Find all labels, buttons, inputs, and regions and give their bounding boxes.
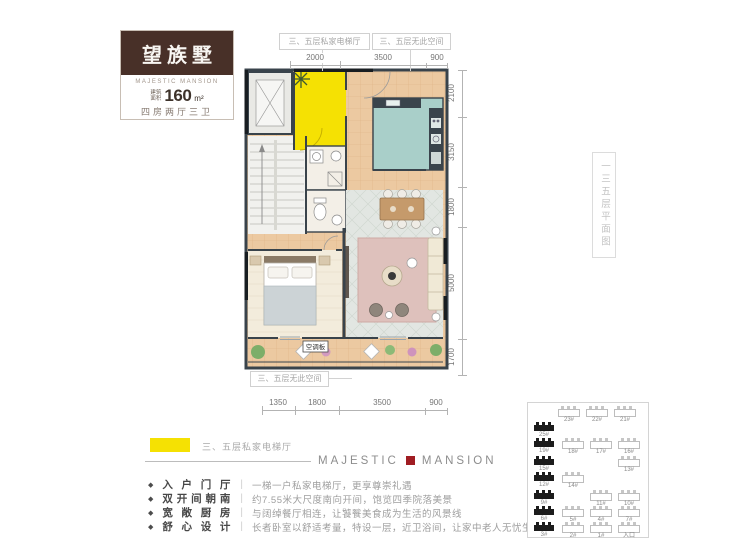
siteplan-building: 12# [534,475,554,481]
kitchen [373,98,443,170]
siteplan-building: 23# [558,409,580,417]
siteplan-building: 25# [534,425,554,431]
siteplan-building: 10# [618,493,640,501]
siteplan-building: 15# [534,459,554,465]
area-value: 160 [164,86,191,106]
dim-line-bottom [262,410,448,411]
siteplan-building: 7# [618,509,640,517]
dim-value: 3500 [367,398,397,408]
dim-tick [458,227,467,228]
dim-value: 3150 [447,135,457,169]
feature-title: 双开间朝南 [162,491,230,506]
bathroom-1 [306,146,346,190]
living-room [344,227,443,322]
svg-text:空调板: 空调板 [306,342,326,351]
feature-desc: 与阔绰餐厅相连，让饕餮美食成为生活的风景线 [252,506,462,520]
floor-tag: 一三五层平面图 [592,152,616,258]
elevator-shaft [248,72,292,134]
area-prefix: 建筑面积 [150,90,161,102]
siteplan-building: 16# [618,441,640,449]
siteplan-building: 22# [586,409,608,417]
callout-elevator-lobby: 三、五层私家电梯厅 [279,33,370,50]
bedroom [248,236,342,338]
dim-value: 900 [424,53,450,63]
siteplan-building: 入口 [618,525,640,533]
floor-plan: 空调板 [240,60,455,390]
dim-value: 3500 [368,53,398,63]
floorplan-page: 望族墅 MAJESTIC MANSION 建筑面积 160 m² 四房两厅三卫 [0,0,750,560]
feature-desc: 长者卧室以舒适考量，特设一层，近卫浴间，让家中老人无忧生活起居 [252,520,562,534]
leader-line [410,49,411,71]
dim-value: 2100 [447,76,457,110]
staircase [248,136,306,234]
separator: | [240,493,243,504]
feature-row: ◆ 入户门厅 | 一梯一户私家电梯厅，更享尊崇礼遇 [148,478,412,491]
siteplan-building-label: 1# [588,533,614,539]
dim-tick [458,375,467,376]
dim-tick [295,406,296,415]
diamond-icon: ◆ [148,495,153,503]
dim-tick [458,339,467,340]
private-elevator-lobby [292,70,346,150]
feature-title: 宽敞厨房 [162,505,230,520]
feature-desc: 约7.55米大尺度南向开间，饱览四季院落美景 [252,492,453,506]
brand-left: MAJESTIC [318,455,399,467]
siteplan-building: 6# [534,509,554,515]
diamond-icon: ◆ [148,509,153,517]
ac-platform-label: 空调板 [303,341,328,352]
leader-line [328,378,352,379]
siteplan-building: 2# [562,525,584,533]
legend-swatch [150,438,190,452]
siteplan-building-label: 14# [560,483,586,489]
siteplan-building-label: 17# [588,449,614,455]
diamond-icon: ◆ [148,523,153,531]
feature-row: ◆ 双开间朝南 | 约7.55米大尺度南向开间，饱览四季院落美景 [148,492,453,505]
siteplan-building-label: 2# [560,533,586,539]
dim-tick [290,61,291,69]
separator: | [240,507,243,518]
dim-value: 900 [423,398,449,408]
siteplan-building: 13# [618,459,640,467]
siteplan-building-label: 21# [612,417,638,423]
siteplan-building-label: 19# [531,448,557,454]
brand-logotype: MAJESTIC MANSION [318,454,497,467]
brand-square-icon [406,456,415,465]
project-name-en: MAJESTIC MANSION [121,79,233,85]
bathroom-2 [306,190,346,232]
dim-line-right [462,70,463,375]
siteplan-building-label: 12# [531,482,557,488]
feature-row: ◆ 舒心设计 | 长者卧室以舒适考量，特设一层，近卫浴间，让家中老人无忧生活起居 [148,520,562,533]
siteplan-building-label: 入口 [616,533,642,539]
dim-tick [340,61,341,69]
brand-right: MANSION [422,455,497,467]
siteplan-building: 18# [562,441,584,449]
feature-row: ◆ 宽敞厨房 | 与阔绰餐厅相连，让饕餮美食成为生活的风景线 [148,506,462,519]
siteplan-building-label: 3# [531,532,557,538]
feature-desc: 一梯一户私家电梯厅，更享尊崇礼遇 [252,478,412,492]
dim-line-top [290,65,448,66]
dim-tick [339,406,340,415]
siteplan-building: 4# [590,509,612,517]
siteplan-building: 19# [534,441,554,447]
separator: | [240,479,243,490]
siteplan-building-label: 23# [556,417,582,423]
dim-value: 1800 [302,398,332,408]
siteplan-building-label: 16# [616,449,642,455]
siteplan-building: 14# [562,475,584,483]
logo-banner: 望族墅 [121,31,233,75]
area-unit: m² [194,94,203,103]
siteplan-building-label: 18# [560,449,586,455]
dim-tick [458,70,467,71]
siteplan-building: 21# [614,409,636,417]
siteplan-building: 17# [590,441,612,449]
legend-label: 三、五层私家电梯厅 [202,440,292,453]
dim-tick [458,187,467,188]
site-key-plan: 23#22#21#25#19#15#12#9#6#3#18#14#5#2#17#… [527,402,649,538]
callout-void-bottom: 三、五层无此空间 [250,371,329,387]
siteplan-building: 1# [590,525,612,533]
separator: | [240,521,243,532]
feature-title: 入户门厅 [162,477,230,492]
siteplan-building-label: 22# [584,417,610,423]
siteplan-building-label: 13# [616,467,642,473]
divider-line [145,461,311,462]
dim-value: 1800 [447,190,457,224]
dim-value: 2000 [300,53,330,63]
dim-value: 1350 [263,398,293,408]
siteplan-building: 9# [534,493,554,499]
feature-title: 舒心设计 [162,519,230,534]
dim-tick [458,117,467,118]
diamond-icon: ◆ [148,481,153,489]
siteplan-building: 11# [590,493,612,501]
unit-layout: 四房两厅三卫 [121,105,233,118]
project-name-cn: 望族墅 [137,39,217,68]
dining-table [380,190,424,229]
siteplan-building: 5# [562,509,584,517]
dim-value: 1700 [447,340,457,374]
siteplan-building: 3# [534,525,554,531]
project-logo: 望族墅 MAJESTIC MANSION 建筑面积 160 m² 四房两厅三卫 [120,30,234,120]
area-row: 建筑面积 160 m² [121,86,233,106]
callout-void-top: 三、五层无此空间 [372,33,451,50]
dim-value: 5000 [447,266,457,300]
